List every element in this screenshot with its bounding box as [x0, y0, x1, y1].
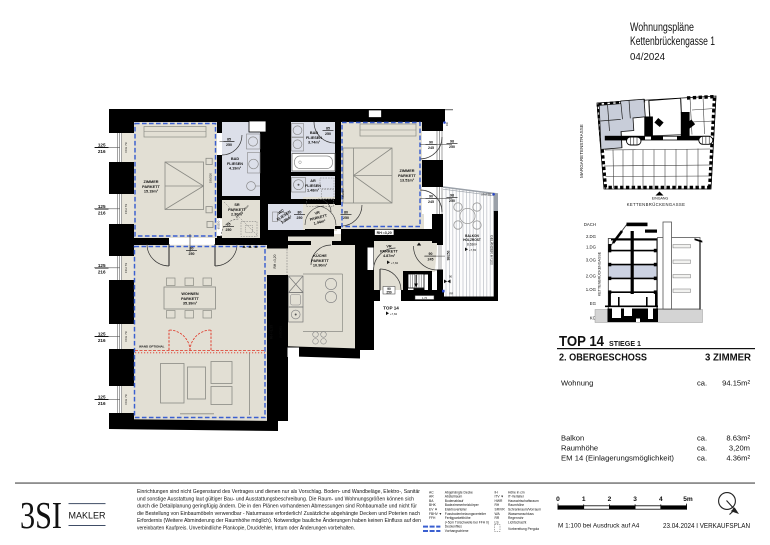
svg-text:125: 125 [98, 263, 106, 268]
svg-text:98: 98 [450, 140, 454, 144]
svg-text:216: 216 [98, 401, 106, 406]
svg-text:0: 0 [556, 496, 560, 503]
svg-text:85: 85 [326, 127, 330, 131]
svg-text:ZIMMER: ZIMMER [400, 169, 415, 173]
svg-text:125: 125 [98, 394, 106, 399]
svg-text:125: 125 [98, 142, 106, 147]
svg-text:2: 2 [608, 496, 612, 503]
svg-text:245: 245 [428, 258, 434, 262]
svg-text:Einrichtungen sind nicht Gegen: Einrichtungen sind nicht Gegenstand des … [137, 489, 420, 495]
svg-text:RH ≈3,20: RH ≈3,20 [273, 254, 277, 268]
svg-text:RH ≈3,20: RH ≈3,20 [377, 231, 392, 235]
svg-text:80: 80 [190, 247, 194, 251]
svg-text:23.04.2024 I VERKAUFSPLAN: 23.04.2024 I VERKAUFSPLAN [663, 521, 750, 530]
svg-text:85: 85 [227, 138, 231, 142]
svg-text:EM 14 (Einlagerungsmöglichkeit: EM 14 (Einlagerungsmöglichkeit) [561, 454, 674, 463]
svg-text:250: 250 [343, 216, 349, 220]
svg-text:PARKETT: PARKETT [380, 249, 398, 253]
svg-text:ca.: ca. [697, 444, 707, 453]
svg-text:vereinbarten Kaufpreis. Unverb: vereinbarten Kaufpreis. Unverbindliche P… [137, 525, 355, 532]
svg-text:FFH 79: FFH 79 [124, 263, 128, 273]
svg-text:80: 80 [344, 211, 348, 215]
svg-text:90: 90 [429, 195, 433, 199]
svg-text:250: 250 [226, 228, 232, 232]
svg-text:4.87m²: 4.87m² [383, 254, 396, 258]
svg-text:AR: AR [310, 179, 316, 183]
svg-text:BAD: BAD [231, 157, 239, 161]
svg-text:3 ZIMMER: 3 ZIMMER [705, 353, 752, 364]
svg-text:+7,84: +7,84 [391, 261, 399, 265]
svg-text:Vorhangschiene: Vorhangschiene [445, 529, 469, 533]
svg-text:Lichtschacht: Lichtschacht [508, 520, 526, 524]
svg-text:2.DG: 2.DG [586, 234, 597, 239]
svg-text:3: 3 [633, 496, 637, 503]
svg-text:+7,84: +7,84 [390, 312, 398, 316]
svg-text:8.63m²: 8.63m² [467, 242, 477, 246]
svg-text:216: 216 [98, 210, 106, 215]
svg-text:Kettenbrückengasse 1: Kettenbrückengasse 1 [630, 36, 715, 48]
svg-text:TOP 14: TOP 14 [559, 334, 605, 350]
svg-text:SR: SR [234, 203, 240, 207]
svg-text:MAKLER: MAKLER [69, 511, 106, 521]
svg-text:90: 90 [429, 141, 433, 145]
svg-text:250: 250 [325, 132, 331, 136]
svg-text:Raumhöhe: Raumhöhe [561, 444, 598, 453]
svg-text:M 1:100 bei Ausdruck auf A4: M 1:100 bei Ausdruck auf A4 [558, 523, 640, 530]
svg-text:125: 125 [98, 331, 106, 336]
svg-text:VR: VR [386, 245, 392, 249]
svg-text:FLIESEN: FLIESEN [306, 136, 322, 140]
svg-text:98: 98 [450, 194, 454, 198]
svg-text:250: 250 [297, 216, 303, 220]
svg-text:STÜTZE: STÜTZE [481, 193, 491, 197]
svg-text:190/220: 190/220 [209, 173, 213, 184]
svg-text:1.48m²: 1.48m² [307, 189, 320, 193]
svg-text:3SI: 3SI [20, 495, 62, 537]
svg-text:250: 250 [386, 291, 392, 295]
svg-text:04/2024: 04/2024 [630, 51, 665, 63]
svg-text:FFH 79: FFH 79 [124, 331, 128, 341]
svg-text:und sonstige Ausstattung laut: und sonstige Ausstattung laut gültiger B… [137, 496, 414, 502]
svg-text:15.19m²: 15.19m² [144, 190, 159, 194]
svg-text:RH ≈3,30: RH ≈3,30 [270, 325, 274, 339]
svg-text:KÜCHE: KÜCHE [313, 253, 327, 258]
svg-text:2. OBERGESCHOSS: 2. OBERGESCHOSS [559, 353, 647, 364]
svg-text:DACH: DACH [584, 222, 596, 227]
svg-text:STIEGE 1: STIEGE 1 [609, 339, 641, 348]
svg-text:Erfordernis (Weitere Abminderu: Erfordernis (Weitere Abminderung der Rau… [137, 517, 421, 524]
svg-text:90: 90 [429, 252, 433, 256]
svg-text:FLIESEN: FLIESEN [305, 184, 321, 188]
svg-text:FFH: FFH [429, 516, 436, 520]
svg-text:3.OG: 3.OG [586, 258, 597, 263]
svg-text:Vorbereitung Pergola: Vorbereitung Pergola [508, 527, 539, 531]
svg-text:1.OG: 1.OG [586, 287, 597, 292]
svg-text:90: 90 [449, 275, 453, 279]
svg-text:4: 4 [659, 496, 663, 503]
svg-text:35.39m²: 35.39m² [183, 302, 198, 306]
svg-text:KETTENBRÜCKENGASSE: KETTENBRÜCKENGASSE [627, 202, 686, 207]
svg-text:5m: 5m [683, 496, 693, 503]
svg-text:TOP 14: TOP 14 [383, 306, 399, 311]
svg-text:WOHNEN: WOHNEN [181, 292, 199, 296]
svg-text:ca.: ca. [697, 434, 707, 443]
svg-text:ca.: ca. [697, 379, 707, 388]
svg-text:8.63m²: 8.63m² [726, 434, 750, 443]
svg-text:13.51m²: 13.51m² [400, 179, 415, 183]
svg-text:RR: RR [450, 292, 454, 296]
svg-text:EINGANG: EINGANG [652, 197, 669, 201]
svg-text:245: 245 [428, 200, 434, 204]
svg-text:FFH 79: FFH 79 [124, 142, 128, 152]
svg-text:ca.: ca. [697, 454, 707, 463]
svg-text:1.DG: 1.DG [586, 245, 597, 250]
svg-text:1: 1 [582, 496, 586, 503]
svg-text:GELÄNDER H=100: GELÄNDER H=100 [490, 235, 494, 265]
svg-text:65: 65 [227, 223, 231, 227]
svg-text:10.90m²: 10.90m² [313, 264, 328, 268]
svg-text:RR: RR [445, 122, 449, 126]
svg-text:PARKETT: PARKETT [398, 174, 416, 178]
svg-text:250: 250 [449, 199, 455, 203]
svg-text:WAND OPTIONAL: WAND OPTIONAL [139, 345, 165, 349]
svg-text:3,20m: 3,20m [729, 444, 750, 453]
svg-text:FFH 79: FFH 79 [124, 204, 128, 214]
svg-text:4.19m²: 4.19m² [229, 167, 242, 171]
svg-text:65/250: 65/250 [217, 220, 221, 229]
svg-text:250: 250 [226, 143, 232, 147]
svg-text:FFH 79: FFH 79 [124, 394, 128, 404]
svg-text:PARKETT: PARKETT [311, 259, 329, 263]
svg-text:216: 216 [98, 338, 106, 343]
svg-text:Wohnung: Wohnung [561, 379, 593, 388]
svg-text:245: 245 [428, 146, 434, 150]
svg-text:KETTENBRÜCKENGASSE: KETTENBRÜCKENGASSE [598, 251, 602, 296]
svg-text:ZIMMER: ZIMMER [144, 180, 159, 184]
svg-text:4.36m²: 4.36m² [726, 454, 750, 463]
svg-text:(NISCHE): (NISCHE) [279, 326, 283, 338]
svg-text:durch die Detailplanung gering: durch die Detailplanung geringfügig ände… [137, 504, 417, 510]
svg-text:216: 216 [98, 269, 106, 274]
svg-text:3.74m²: 3.74m² [308, 141, 321, 145]
svg-text:125: 125 [98, 204, 106, 209]
svg-text:EG: EG [590, 301, 597, 306]
svg-text:FLIESEN: FLIESEN [227, 162, 243, 166]
svg-text:216: 216 [98, 149, 106, 154]
svg-text:die Bestellung von Einbaumöbel: die Bestellung von Einbaumöbeln verwendb… [137, 511, 420, 517]
svg-text:80: 80 [298, 211, 302, 215]
svg-text:98/250: 98/250 [447, 250, 451, 260]
svg-text:2.OG: 2.OG [586, 274, 597, 279]
svg-text:PARKETT: PARKETT [142, 185, 160, 189]
svg-text:Balkon: Balkon [561, 434, 584, 443]
svg-text:1,76: 1,76 [422, 296, 428, 300]
svg-text:94.15m²: 94.15m² [722, 379, 750, 388]
svg-text:Wohnungspläne: Wohnungspläne [630, 22, 694, 34]
svg-text:BAD: BAD [310, 131, 318, 135]
svg-text:180/230: 180/230 [341, 189, 345, 199]
svg-text:PARKETT: PARKETT [181, 297, 199, 301]
svg-text:MARGARETENSTRASSE: MARGARETENSTRASSE [579, 124, 584, 178]
svg-text:+7,83: +7,83 [469, 248, 477, 252]
svg-text:250: 250 [189, 252, 195, 256]
svg-text:250: 250 [449, 145, 455, 149]
